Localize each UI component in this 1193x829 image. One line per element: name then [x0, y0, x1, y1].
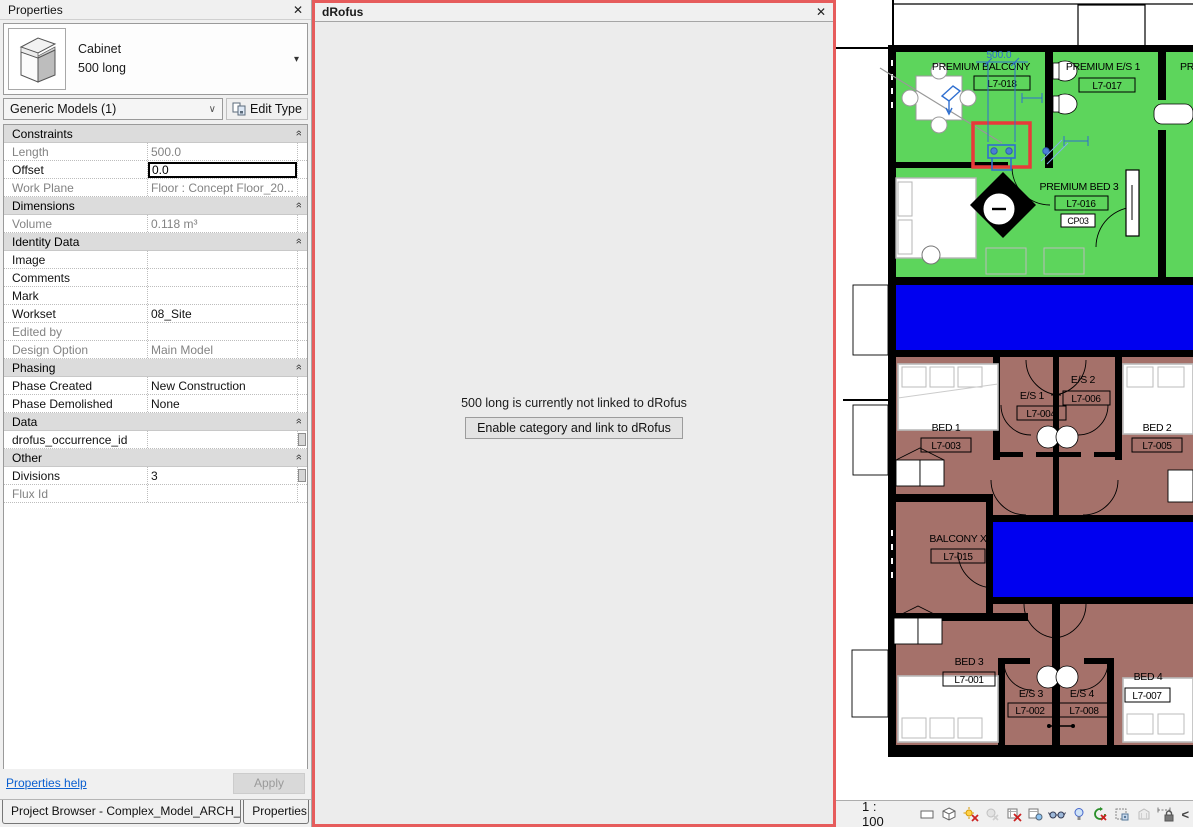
shadows-icon[interactable] — [983, 805, 1002, 823]
offset-value-input[interactable]: 0.0 — [148, 162, 297, 178]
room-label: E/S 2 — [1071, 374, 1096, 386]
crop-view-icon[interactable] — [1004, 805, 1023, 823]
detail-level-icon[interactable] — [918, 805, 937, 823]
collapse-icon[interactable]: » — [293, 365, 305, 369]
apply-button[interactable]: Apply — [233, 773, 305, 794]
keynote-tag: CP03 — [1067, 216, 1089, 226]
type-selector[interactable]: Cabinet 500 long ▾ — [3, 23, 308, 95]
room-tag: L7-001 — [954, 675, 984, 686]
property-grid: Constraints» Length500.0 Offset0.0 Work … — [3, 124, 308, 770]
room-tag: L7-007 — [1132, 691, 1162, 702]
properties-panel: Properties ✕ Cabinet 500 long ▾ — [0, 0, 312, 827]
section-header[interactable]: Dimensions» — [4, 197, 307, 215]
room-tag: L7-018 — [987, 79, 1017, 90]
type-preview-image — [8, 28, 66, 90]
tab-properties[interactable]: Properties — [243, 800, 309, 824]
room-tag: L7-015 — [943, 552, 973, 563]
highlight-displaced-elements-icon[interactable] — [1134, 805, 1153, 823]
property-row[interactable]: Phase DemolishedNone — [4, 395, 307, 413]
section-header[interactable]: Phasing» — [4, 359, 307, 377]
room-tag: L7-004 — [1026, 409, 1056, 420]
edit-type-label: Edit Type — [250, 102, 302, 116]
drofus-status-message: 500 long is currently not linked to dRof… — [315, 396, 833, 410]
drofus-titlebar: dRofus ✕ — [315, 3, 833, 22]
floor-plan-canvas[interactable]: PREMIUM BALCONY L7-018 PREMIUM E/S 1 L7-… — [836, 0, 1193, 800]
visual-style-icon[interactable] — [940, 805, 959, 823]
value-browse-button[interactable] — [298, 433, 306, 446]
value-browse-button[interactable] — [298, 469, 306, 482]
close-icon[interactable]: ✕ — [816, 6, 826, 18]
property-row[interactable]: Workset08_Site — [4, 305, 307, 323]
collapse-icon[interactable]: » — [293, 419, 305, 423]
room-label-clipped: PR — [1180, 61, 1193, 73]
property-row[interactable]: Phase CreatedNew Construction — [4, 377, 307, 395]
properties-footer: Properties help Apply — [0, 769, 311, 797]
view-scale-button[interactable]: 1 : 100 — [862, 799, 901, 829]
show-analytical-model-icon[interactable] — [1113, 805, 1132, 823]
room-tag: L7-017 — [1092, 81, 1122, 92]
property-row: Offset0.0 — [4, 161, 307, 179]
temporary-hide-isolate-icon[interactable] — [1048, 805, 1067, 823]
dimension-value: 500.0 — [986, 50, 1011, 61]
collapse-icon[interactable]: » — [293, 455, 305, 459]
section-header[interactable]: Constraints» — [4, 125, 307, 143]
drofus-title: dRofus — [322, 5, 816, 19]
enable-category-button[interactable]: Enable category and link to dRofus — [465, 417, 683, 439]
room-label: BALCONY X — [929, 533, 987, 545]
properties-titlebar: Properties ✕ — [0, 0, 311, 20]
chevron-down-icon: ∨ — [209, 104, 216, 115]
edit-type-icon — [232, 102, 246, 116]
property-row[interactable]: Mark — [4, 287, 307, 305]
properties-title: Properties — [8, 3, 293, 17]
show-crop-region-icon[interactable] — [1026, 805, 1045, 823]
property-row[interactable]: drofus_occurrence_id — [4, 431, 307, 449]
drofus-panel: dRofus ✕ 500 long is currently not linke… — [312, 0, 836, 827]
temporary-view-properties-icon[interactable] — [1091, 805, 1110, 823]
property-row: Edited by — [4, 323, 307, 341]
room-label: PREMIUM E/S 1 — [1066, 61, 1141, 73]
properties-help-link[interactable]: Properties help — [6, 776, 233, 790]
property-row[interactable]: Image — [4, 251, 307, 269]
type-name: 500 long — [78, 59, 126, 78]
section-header[interactable]: Data» — [4, 413, 307, 431]
chevron-down-icon[interactable]: ▾ — [294, 54, 299, 65]
reveal-constraints-icon[interactable] — [1156, 805, 1175, 823]
type-label: Cabinet 500 long — [78, 40, 126, 78]
section-header[interactable]: Identity Data» — [4, 233, 307, 251]
room-label: E/S 4 — [1070, 688, 1095, 700]
property-row: Volume0.118 m³ — [4, 215, 307, 233]
property-row[interactable]: Divisions3 — [4, 467, 307, 485]
reveal-hidden-elements-icon[interactable] — [1069, 805, 1088, 823]
room-tag: L7-008 — [1069, 706, 1099, 717]
collapse-icon[interactable]: » — [293, 131, 305, 135]
room-label: PREMIUM BALCONY — [932, 61, 1030, 73]
family-name: Cabinet — [78, 40, 126, 59]
room-tag: L7-006 — [1071, 394, 1101, 405]
property-row: Length500.0 — [4, 143, 307, 161]
collapse-icon[interactable]: » — [293, 239, 305, 243]
drawing-area[interactable]: PREMIUM BALCONY L7-018 PREMIUM E/S 1 L7-… — [836, 0, 1193, 800]
category-filter-value: Generic Models (1) — [10, 102, 209, 116]
property-row: Flux Id — [4, 485, 307, 503]
room-label: BED 2 — [1143, 422, 1172, 434]
section-header[interactable]: Other» — [4, 449, 307, 467]
room-tag: L7-016 — [1066, 199, 1096, 210]
collapse-icon[interactable]: » — [293, 203, 305, 207]
room-label: PREMIUM BED 3 — [1040, 181, 1119, 193]
room-label: BED 1 — [932, 422, 961, 434]
cabinet-thumbnail — [12, 31, 62, 87]
close-icon[interactable]: ✕ — [293, 4, 303, 16]
room-tag: L7-002 — [1015, 706, 1045, 717]
room-label: BED 4 — [1134, 671, 1163, 683]
room-label: BED 3 — [955, 656, 984, 668]
room-tag: L7-003 — [931, 441, 961, 452]
collapse-bar-icon[interactable]: < — [1181, 807, 1189, 822]
view-control-bar: 1 : 100 < — [836, 800, 1193, 827]
palette-tabs: Project Browser - Complex_Model_ARCH_Wi.… — [0, 799, 311, 827]
property-row[interactable]: Comments — [4, 269, 307, 287]
sun-path-icon[interactable] — [961, 805, 980, 823]
category-filter-select[interactable]: Generic Models (1) ∨ — [3, 98, 223, 120]
room-label: E/S 1 — [1020, 390, 1045, 402]
tab-project-browser[interactable]: Project Browser - Complex_Model_ARCH_Wi.… — [2, 800, 241, 824]
room-tag: L7-005 — [1142, 441, 1172, 452]
property-row: Work PlaneFloor : Concept Floor_20... — [4, 179, 307, 197]
property-row: Design OptionMain Model — [4, 341, 307, 359]
room-label: E/S 3 — [1019, 688, 1044, 700]
edit-type-button[interactable]: Edit Type — [226, 98, 308, 120]
